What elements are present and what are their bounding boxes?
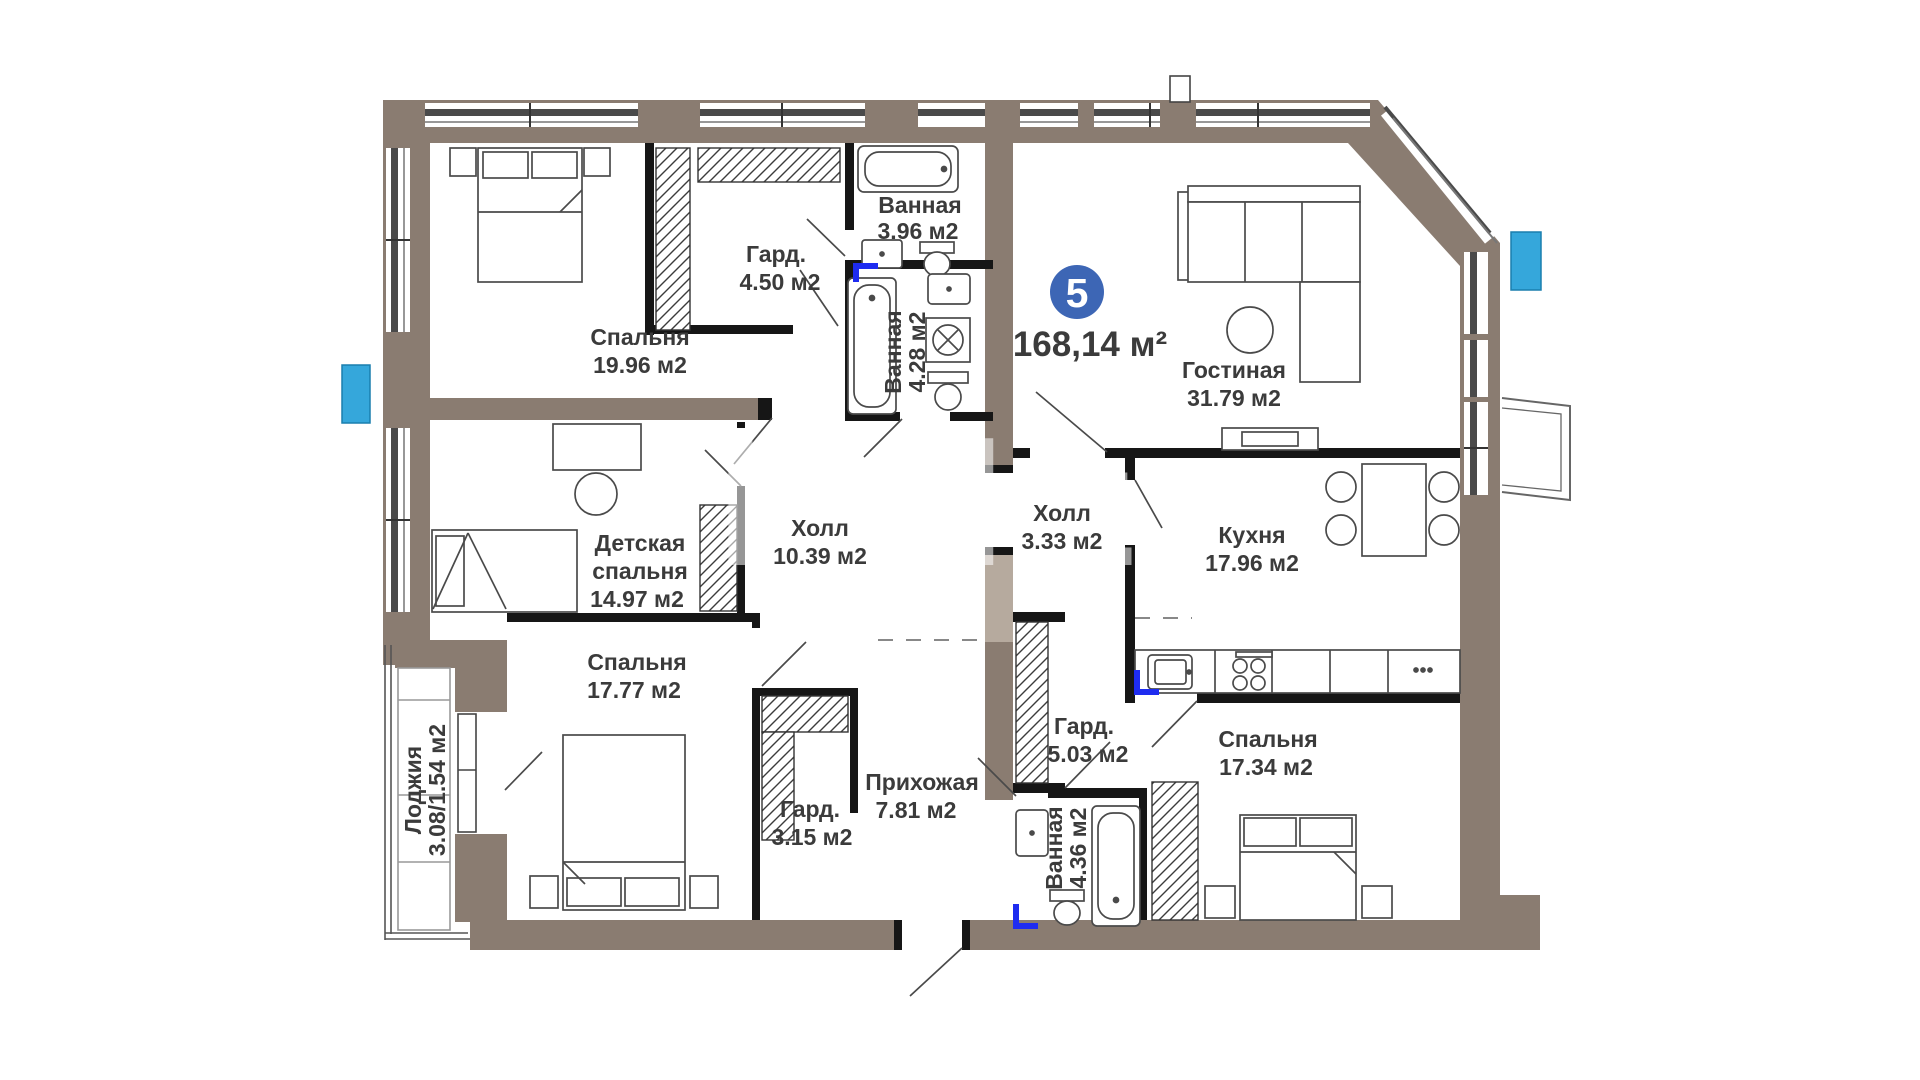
sofa-seat: [1188, 202, 1360, 282]
chair: [1326, 515, 1356, 545]
pillow: [532, 152, 577, 178]
toilet-tank: [928, 372, 968, 383]
wall-wardrobe1-bath1-upper: [845, 143, 854, 230]
wall-bedroom2-entry: [752, 688, 760, 920]
nightstand: [450, 148, 476, 176]
label-bedroom1-name: Спальня: [590, 324, 689, 350]
door-loggia: [505, 752, 542, 790]
toilet-bowl: [935, 384, 961, 410]
wall-loggia-pier-top: [455, 666, 507, 712]
floor-plan-page: kn.kz Спальня 19.96 м2 Гард. 4.50 м2 Ван…: [0, 0, 1920, 1080]
total-area: 168,14 м²: [1013, 325, 1167, 364]
bedroom1-furniture: [450, 148, 610, 282]
coffee-table: [1227, 307, 1273, 353]
burner: [1233, 676, 1247, 690]
label-kids-name1: Детская: [595, 530, 686, 556]
window-right-kitchen: [1464, 340, 1488, 397]
pillow: [625, 878, 679, 906]
label-entry-area: 7.81 м2: [876, 797, 957, 823]
label-living-area: 31.79 м2: [1187, 385, 1281, 411]
label-wardrobe2-name: Гард.: [780, 796, 840, 822]
kitchen-sink-inner: [1155, 660, 1186, 684]
wall-loggia-pier-bottom: [455, 834, 507, 922]
label-bedroom2-name: Спальня: [587, 649, 686, 675]
wall-kitchen-bedroom3: [1197, 693, 1460, 703]
wall-wardrobe2-right: [850, 688, 858, 813]
toilet-tank: [1050, 890, 1084, 901]
dining-table: [1362, 464, 1426, 556]
label-kitchen-area: 17.96 м2: [1205, 550, 1299, 576]
wall-bath3-top: [1048, 788, 1147, 798]
wall-bottom-right-step: [1460, 895, 1540, 950]
elevator-marker-right: [1511, 232, 1541, 290]
bedroom3-wardrobe-unit: [1152, 782, 1198, 920]
wall-bedroom2-cap: [752, 622, 760, 628]
window-top-bedroom1: [425, 103, 638, 127]
label-wardrobe1-area: 4.50 м2: [740, 269, 821, 295]
label-bedroom1-area: 19.96 м2: [593, 352, 687, 378]
desk: [553, 424, 641, 470]
door-entrance: [910, 948, 962, 996]
door-kitchen: [1135, 480, 1162, 528]
wardrobe2-horizontal-unit: [762, 696, 848, 732]
burner: [1251, 659, 1265, 673]
window-right-balcony-door: [1464, 402, 1488, 495]
nightstand: [1362, 886, 1392, 918]
chair: [1326, 472, 1356, 502]
wall-bedroom1-wardrobe: [645, 143, 654, 335]
label-wardrobe1-name: Гард.: [746, 241, 806, 267]
chair: [1429, 515, 1459, 545]
label-wardrobe3-area: 5.03 м2: [1048, 741, 1129, 767]
window-left-bedroom1: [386, 148, 410, 332]
stove-panel: [1236, 652, 1272, 657]
label-bath2-name: Ванная: [880, 310, 906, 393]
door-bath1: [807, 219, 845, 256]
wall-wardrobe3-top: [1013, 612, 1065, 622]
sofa-chaise: [1300, 282, 1360, 382]
vent-shaft: [1170, 76, 1190, 102]
wall-entrance-cap-left: [894, 920, 902, 950]
tv: [1242, 432, 1298, 446]
label-living-name: Гостиная: [1182, 357, 1286, 383]
pillow: [1244, 818, 1296, 846]
window-left-kids: [386, 428, 410, 612]
chair: [1429, 472, 1459, 502]
wall-diagonal-bay: [1348, 100, 1500, 266]
wall-wardrobe2-top: [752, 688, 858, 696]
sofa-back: [1188, 186, 1360, 202]
wall-kids-bedroom2: [507, 613, 760, 622]
wardrobe1-horizontal-unit: [698, 148, 840, 182]
toilet-bowl: [924, 252, 950, 276]
pillow: [1300, 818, 1352, 846]
label-bedroom3-name: Спальня: [1218, 726, 1317, 752]
label-bedroom3-area: 17.34 м2: [1219, 754, 1313, 780]
label-bath2-area: 4.28 м2: [904, 312, 930, 393]
loggia-door-panel: [458, 714, 476, 832]
label-wardrobe2-area: 3.15 м2: [772, 824, 853, 850]
bedroom3-furniture: [1205, 815, 1392, 920]
bathtub-inner: [865, 152, 951, 186]
burner: [1233, 659, 1247, 673]
label-hall-small-name: Холл: [1033, 500, 1091, 526]
label-bath3-name: Ванная: [1041, 806, 1067, 889]
door-bedroom3: [1152, 701, 1197, 747]
label-kids-name2: спальня: [592, 558, 688, 584]
elevator-marker-left: [342, 365, 370, 423]
kitchen-furniture: [1135, 464, 1460, 693]
nightstand: [1205, 886, 1235, 918]
label-bedroom2-area: 17.77 м2: [587, 677, 681, 703]
label-loggia-name: Лоджия: [400, 746, 426, 834]
nightstand: [584, 148, 610, 176]
pillow: [483, 152, 528, 178]
label-kids-area: 14.97 м2: [590, 586, 684, 612]
label-kitchen-name: Кухня: [1218, 522, 1285, 548]
wall-loggia-top: [395, 640, 507, 668]
nightstand: [530, 876, 558, 908]
label-wardrobe3-name: Гард.: [1054, 713, 1114, 739]
label-loggia-area: 3.08/1.54 м2: [424, 724, 450, 856]
floor-plan: kn.kz Спальня 19.96 м2 Гард. 4.50 м2 Ван…: [0, 0, 1920, 1080]
nightstand: [690, 876, 718, 908]
label-entry-name: Прихожая: [865, 769, 978, 795]
burner: [1251, 676, 1265, 690]
window-top-bath: [918, 103, 985, 127]
wardrobe3-unit: [1016, 622, 1048, 783]
window-right-living: [1464, 252, 1488, 334]
unit-badge: 5 168,14 м²: [1013, 265, 1167, 364]
label-bath1-area: 3.96 м2: [878, 218, 959, 244]
wardrobe1-vertical-unit: [656, 148, 690, 330]
label-bath3-area: 4.36 м2: [1065, 808, 1091, 889]
wall-kitchen-corner: [1125, 693, 1135, 703]
label-hall-area: 10.39 м2: [773, 543, 867, 569]
toilet-bowl: [1054, 901, 1080, 925]
label-hall-name: Холл: [791, 515, 849, 541]
bedroom2-furniture: [530, 735, 718, 910]
label-hall-small-area: 3.33 м2: [1022, 528, 1103, 554]
label-bath1-name: Ванная: [878, 192, 961, 218]
window-top-wardrobe: [700, 103, 865, 127]
chair: [575, 473, 617, 515]
door-bedroom2: [762, 642, 806, 686]
pillow: [567, 878, 621, 906]
entrance-opening: [902, 920, 962, 950]
right-balcony: [1502, 398, 1570, 500]
wall-entrance-cap-right: [962, 920, 970, 950]
unit-number: 5: [1066, 270, 1089, 316]
